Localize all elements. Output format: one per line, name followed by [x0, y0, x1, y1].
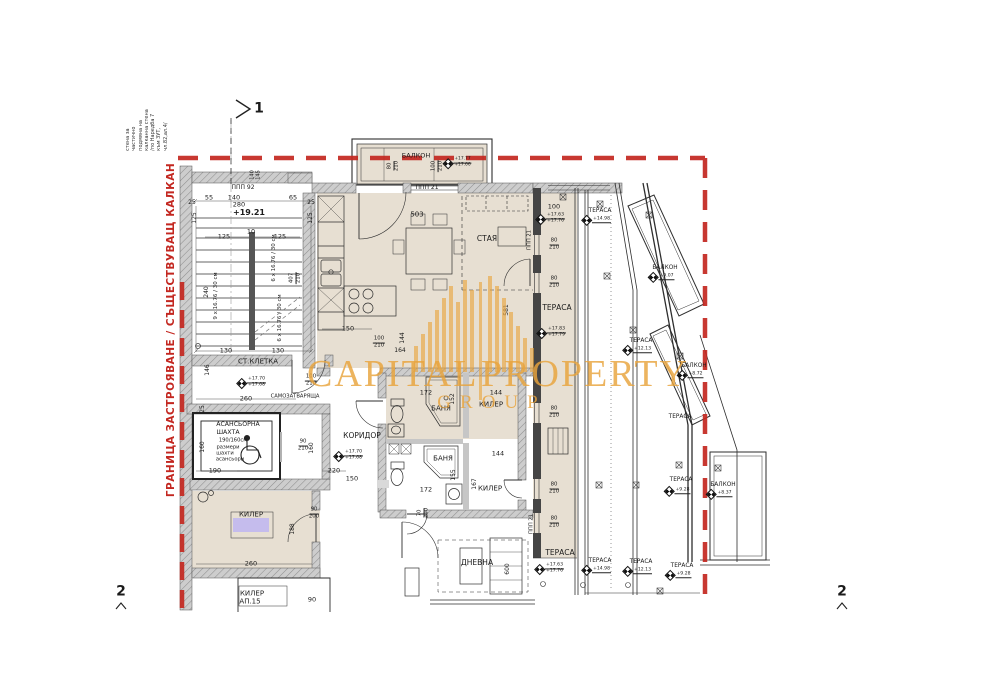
section-caret-right: [837, 603, 847, 609]
floor-plan-drawing: [0, 0, 990, 700]
floor-plan-page: 122ППП 9214014555140652802525+19.2112512…: [0, 0, 990, 700]
wheelchair-icon: [241, 436, 261, 465]
dnevna-room: [402, 522, 535, 604]
vent-symbols: [560, 194, 721, 594]
highlight-kiler: [233, 518, 269, 532]
balcony-top: [352, 139, 492, 185]
wall-note: стена за частично подмяна на калканна ст…: [125, 109, 169, 151]
section-caret-left: [116, 603, 126, 609]
elevator-shaft: [193, 413, 282, 479]
boundary-label: ГРАНИЦА ЗАСТРОЯВАНЕ / СЪЩЕСТВУВАЩ КАЛКАН: [165, 163, 177, 497]
section-arrow-1: [236, 100, 250, 118]
